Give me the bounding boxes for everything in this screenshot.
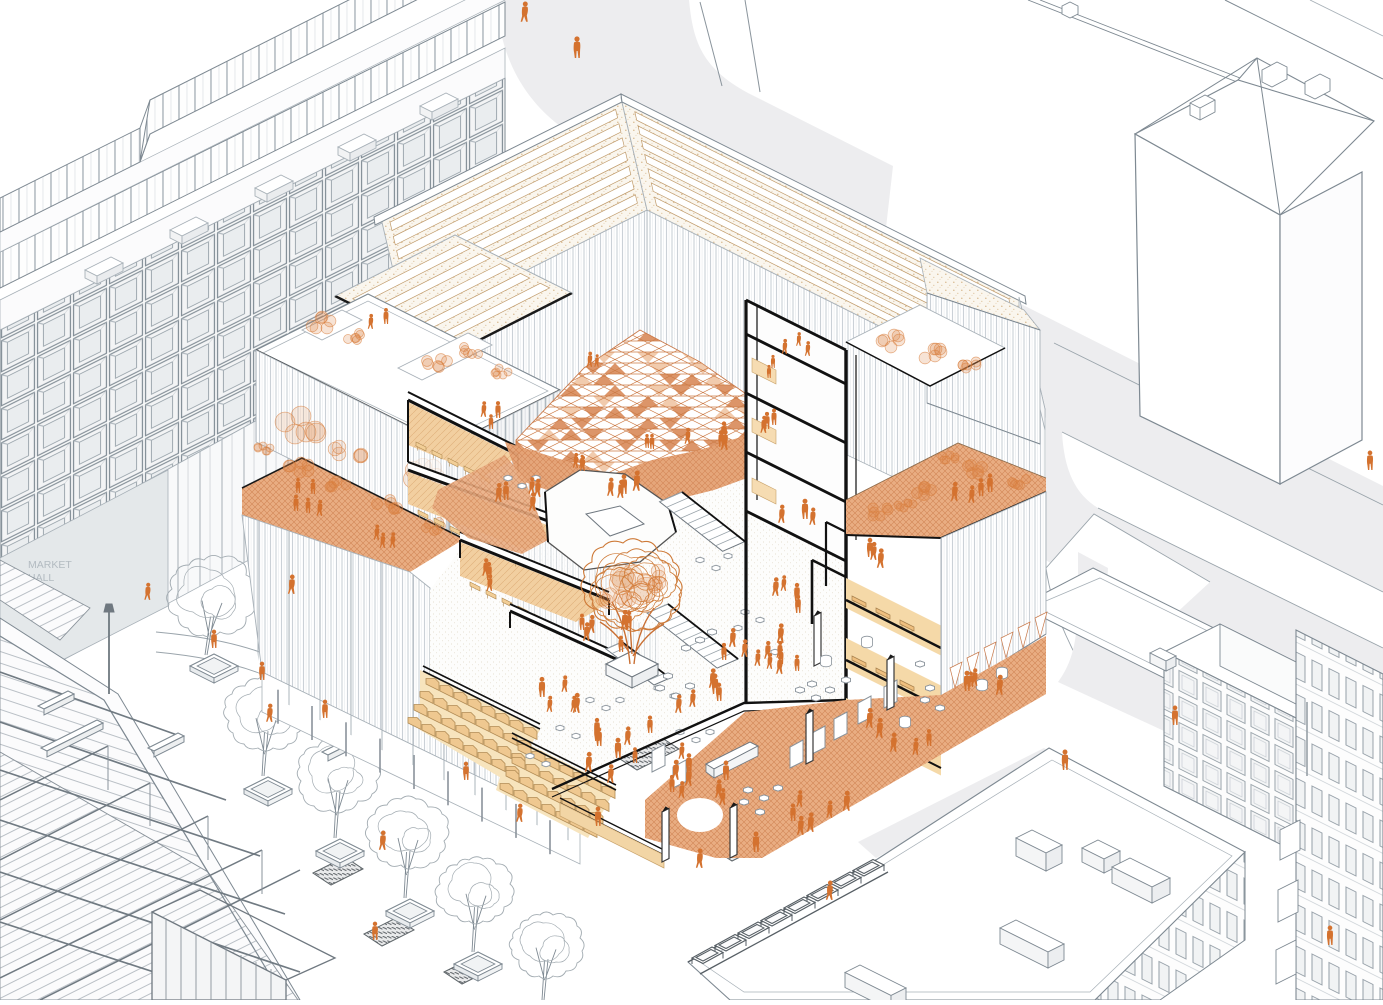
svg-text:MARKET: MARKET	[28, 559, 72, 571]
